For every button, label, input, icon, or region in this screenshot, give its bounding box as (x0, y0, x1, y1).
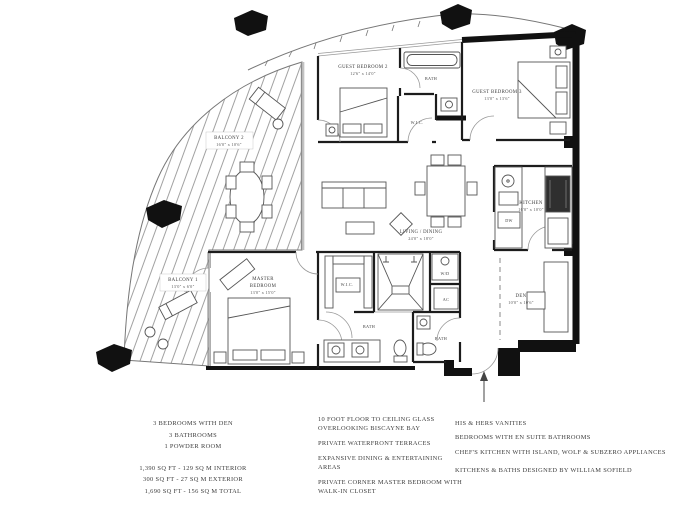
room-label: AC (443, 297, 449, 302)
room-label: BATH (425, 76, 437, 81)
area-summary: 1,390 SQ FT - 129 SQ M INTERIOR 300 SQ F… (118, 463, 268, 498)
room-dims: 10'0" x 10'6" (508, 300, 534, 305)
room-label: KITCHEN (519, 201, 543, 206)
room-dims: 13'0" x 13'6" (484, 96, 510, 101)
column-icon (440, 4, 472, 30)
planter (145, 327, 155, 337)
feature-item: BEDROOMS WITH EN SUITE BATHROOMS (455, 433, 683, 442)
toilet (441, 98, 457, 111)
room-label: W/D (440, 271, 449, 276)
side-table (273, 119, 283, 129)
features-column-right: HIS & HERS VANITIES BEDROOMS WITH EN SUI… (455, 419, 683, 480)
room-label: DW (505, 218, 513, 223)
room-label: W.I.C. (411, 120, 424, 125)
toilet (394, 340, 407, 362)
feature-item: EXPANSIVE DINING & ENTERTAINING AREAS (318, 454, 466, 473)
bathtub (404, 52, 460, 68)
room-label: BATH (435, 336, 447, 341)
area-line: 1,690 SQ FT - 156 SQ M TOTAL (118, 486, 268, 498)
sink (417, 316, 430, 329)
room-dims: 16'0" x 10'6" (216, 142, 242, 147)
room-dims: 24'0" x 18'0" (408, 236, 434, 241)
room-label: W.I.C. (341, 282, 354, 287)
feature-item: KITCHENS & BATHS DESIGNED BY WILLIAM SOF… (455, 466, 683, 475)
room-label: BEDROOM (250, 284, 277, 289)
room-label: BATH (363, 324, 375, 329)
floorplan-page: { "plan": { "labels": { "guest_bedroom_2… (0, 0, 690, 518)
bed (214, 259, 304, 364)
room-dims: 12'6" x 14'0" (350, 71, 376, 76)
bedroom-bath-summary: 3 BEDROOMS WITH DEN 3 BATHROOMS 1 POWDER… (118, 418, 268, 453)
bed (326, 88, 387, 137)
toilet (417, 343, 436, 355)
washer-dryer (432, 254, 458, 280)
feature-item: PRIVATE WATERFRONT TERRACES (318, 439, 466, 448)
feature-item: PRIVATE CORNER MASTER BEDROOM WITH WALK-… (318, 478, 466, 497)
room-label: BALCONY 2 (214, 136, 244, 141)
room-label: LIVING / DINING (400, 230, 443, 235)
feature-item: 10 FOOT FLOOR TO CEILING GLASS OVERLOOKI… (318, 415, 466, 434)
unit-summary: 3 BEDROOMS WITH DEN 3 BATHROOMS 1 POWDER… (118, 418, 268, 497)
planter (158, 339, 168, 349)
room-label: BALCONY 1 (168, 278, 198, 283)
summary-line: 3 BEDROOMS WITH DEN (118, 418, 268, 430)
desk (527, 262, 568, 332)
area-line: 1,390 SQ FT - 129 SQ M INTERIOR (118, 463, 268, 475)
legend: 3 BEDROOMS WITH DEN 3 BATHROOMS 1 POWDER… (0, 408, 690, 518)
entry-arrow-icon (480, 371, 488, 402)
feature-item: CHEF'S KITCHEN WITH ISLAND, WOLF & SUBZE… (455, 448, 683, 457)
room-dims: 13'0" x 6'0" (171, 284, 194, 289)
summary-line: 1 POWDER ROOM (118, 441, 268, 453)
shower (378, 254, 423, 310)
feature-item: HIS & HERS VANITIES (455, 419, 683, 428)
features-column-left: 10 FOOT FLOOR TO CEILING GLASS OVERLOOKI… (318, 415, 466, 502)
room-label: GUEST BEDROOM 3 (472, 90, 522, 95)
vanity (324, 340, 380, 362)
room-dims: 13'0" x 15'0" (250, 290, 276, 295)
room-label: MASTER (252, 277, 274, 282)
dining-table (415, 155, 477, 227)
area-line: 300 SQ FT - 27 SQ M EXTERIOR (118, 474, 268, 486)
room-label: DEN (516, 294, 527, 299)
room-dims: 16'0" x 10'0" (518, 207, 544, 212)
floor-plan: GUEST BEDROOM 2 12'6" x 14'0" BATH W.I.C… (0, 0, 690, 408)
column-icon (234, 10, 268, 36)
column-icon (96, 344, 132, 372)
sofa (322, 182, 412, 235)
room-label: GUEST BEDROOM 2 (338, 65, 388, 70)
bed (518, 46, 570, 134)
summary-line: 3 BATHROOMS (118, 430, 268, 442)
